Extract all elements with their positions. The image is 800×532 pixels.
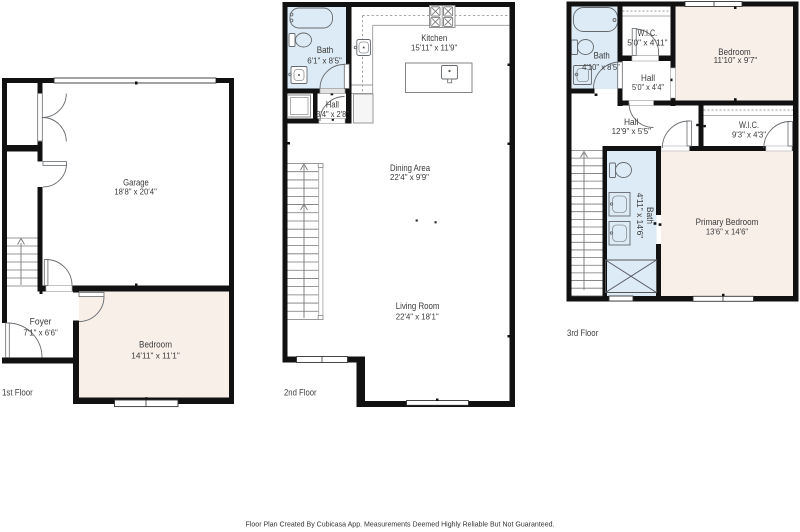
svg-text:11'10" x 9'7": 11'10" x 9'7" — [714, 55, 758, 65]
svg-text:7'1" x 6'6": 7'1" x 6'6" — [23, 327, 57, 337]
svg-text:Hall: Hall — [326, 99, 339, 109]
svg-text:Bath: Bath — [594, 51, 610, 61]
svg-text:Bath: Bath — [317, 45, 334, 55]
svg-text:14'11" x 11'1": 14'11" x 11'1" — [131, 350, 180, 360]
svg-text:22'4" x 18'1": 22'4" x 18'1" — [396, 311, 439, 321]
svg-text:5'0" x 4'4": 5'0" x 4'4" — [632, 82, 664, 92]
svg-text:Primary Bedroom: Primary Bedroom — [696, 217, 759, 227]
svg-text:13'6" x 14'6": 13'6" x 14'6" — [706, 227, 748, 237]
svg-text:6'1" x 8'5": 6'1" x 8'5" — [307, 55, 342, 65]
svg-text:12'9" x 5'5": 12'9" x 5'5" — [612, 126, 651, 136]
svg-text:Floor Plan Created By Cubicasa: Floor Plan Created By Cubicasa App. Meas… — [246, 520, 555, 529]
svg-text:4'10" x 8'5": 4'10" x 8'5" — [582, 62, 620, 72]
svg-text:Bath: Bath — [645, 207, 655, 224]
svg-text:Living Room: Living Room — [396, 301, 440, 311]
svg-text:15'11" x 11'9": 15'11" x 11'9" — [411, 43, 457, 53]
svg-text:Kitchen: Kitchen — [421, 33, 447, 43]
svg-text:2nd Floor: 2nd Floor — [284, 387, 317, 397]
svg-text:18'8" x 20'4": 18'8" x 20'4" — [114, 186, 157, 196]
svg-text:3'4" x 2'8": 3'4" x 2'8" — [316, 109, 349, 119]
svg-text:Foyer: Foyer — [30, 316, 52, 326]
svg-text:3rd Floor: 3rd Floor — [567, 328, 598, 338]
svg-text:Bedroom: Bedroom — [139, 340, 172, 350]
svg-text:W.I.C.: W.I.C. — [638, 28, 658, 38]
svg-text:4'11" x 14'6": 4'11" x 14'6" — [635, 193, 645, 239]
svg-text:5'0" x 4'11": 5'0" x 4'11" — [627, 38, 667, 48]
svg-text:22'4" x 9'9": 22'4" x 9'9" — [390, 172, 429, 182]
svg-text:9'3" x 4'3": 9'3" x 4'3" — [732, 129, 766, 139]
svg-text:1st Floor: 1st Floor — [2, 388, 33, 398]
